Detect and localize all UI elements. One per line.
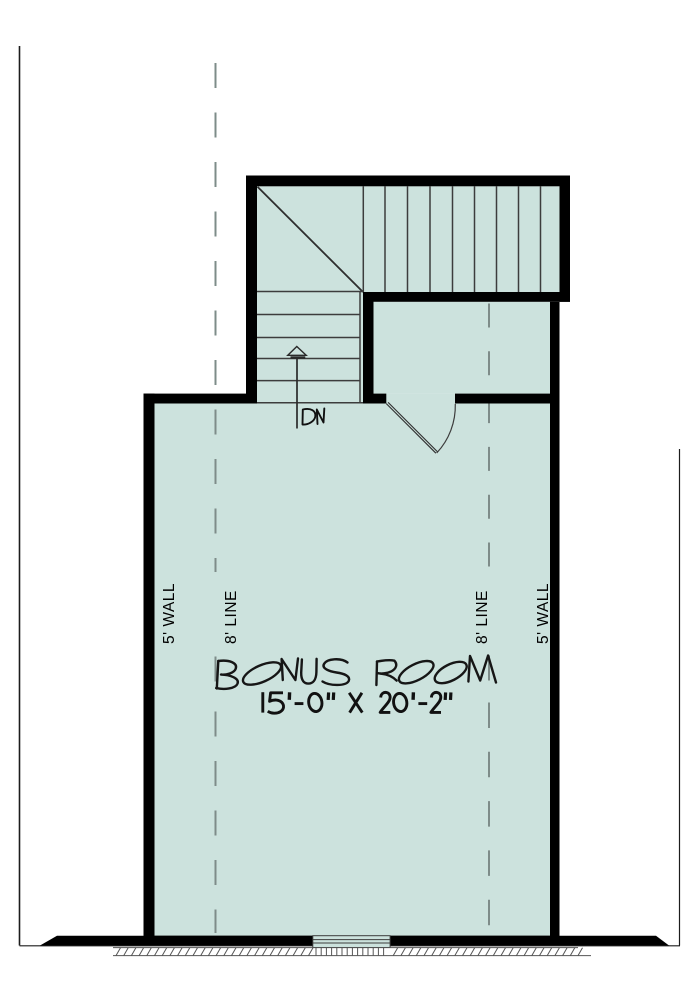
svg-text:8' LINE: 8' LINE [223,590,240,644]
svg-text:8' LINE: 8' LINE [474,590,491,644]
svg-text:5' WALL: 5' WALL [535,583,552,644]
svg-text:5' WALL: 5' WALL [161,583,178,644]
